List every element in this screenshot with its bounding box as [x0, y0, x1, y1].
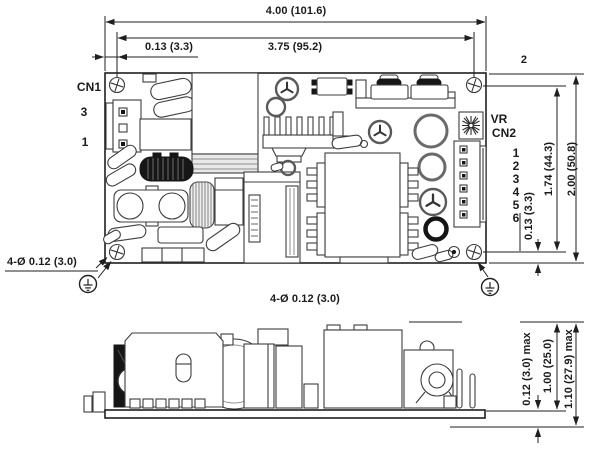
dim-edge-to-hole-left-label: 0.13 (3.3)	[145, 41, 193, 53]
dim-component-height-label: 1.00 (25.0)	[542, 339, 554, 393]
dim-hole-span-width-label: 3.75 (95.2)	[268, 41, 322, 53]
input-filter-transformer	[192, 73, 258, 173]
cn2-connector	[454, 141, 486, 227]
cn1-pin3-label: 3	[81, 105, 88, 119]
toroid-inductor	[140, 153, 193, 181]
cn2-pin-5-label: 5	[513, 198, 520, 212]
ground-leader-right	[478, 263, 488, 278]
cn1-label: CN1	[77, 80, 101, 94]
dim-hole-span-height-label: 1.74 (44.3)	[543, 142, 555, 196]
drawing-canvas: 4.00 (101.6) 0.13 (3.3) 3.75 (95.2) 2 CN…	[0, 0, 600, 455]
top-view	[102, 73, 486, 263]
dim-pin-protrusion-label: 0.12 (3.0) max	[521, 332, 533, 406]
film-capacitor	[114, 186, 188, 226]
dim-overall-height-side-label: 1.10 (27.9) max	[563, 329, 575, 409]
cn1-connector	[106, 100, 141, 152]
ground-symbol-right	[482, 279, 499, 296]
cn1-pin1-label: 1	[82, 135, 89, 149]
dim-overall-height-label: 2.00 (50.8)	[566, 142, 578, 196]
dim-edge-to-hole-bottom-label: 0.13 (3.3)	[523, 192, 535, 240]
vr-label: VR	[491, 112, 508, 126]
pcb-mechanical-drawing	[0, 0, 600, 455]
pcb-side-profile	[105, 410, 485, 418]
corner-note-label: 2	[521, 54, 527, 66]
output-assembly-side	[404, 341, 475, 408]
dim-overall-width-label: 4.00 (101.6)	[266, 5, 327, 17]
vr-potentiometer	[459, 112, 483, 139]
cn2-pin-1-label: 1	[513, 146, 520, 160]
cn2-pin-2-label: 2	[513, 159, 520, 173]
cn2-pin-3-label: 3	[513, 172, 520, 186]
optocoupler-ic	[312, 78, 352, 95]
choke-coil	[190, 182, 214, 228]
cn2-pin-4-label: 4	[513, 185, 520, 199]
pfc-transformer	[244, 172, 300, 263]
main-transformer-side	[324, 325, 402, 408]
cn2-pin-6-label: 6	[513, 211, 520, 225]
mounting-hole-note-label: 4-Ø 0.12 (3.0)	[270, 293, 340, 305]
cn2-label: CN2	[492, 126, 516, 140]
mounting-hole-callout-label: 4-Ø 0.12 (3.0)	[7, 256, 77, 268]
ground-symbol-left	[80, 276, 97, 293]
transformer-side-box	[125, 333, 223, 407]
side-view	[84, 325, 485, 418]
